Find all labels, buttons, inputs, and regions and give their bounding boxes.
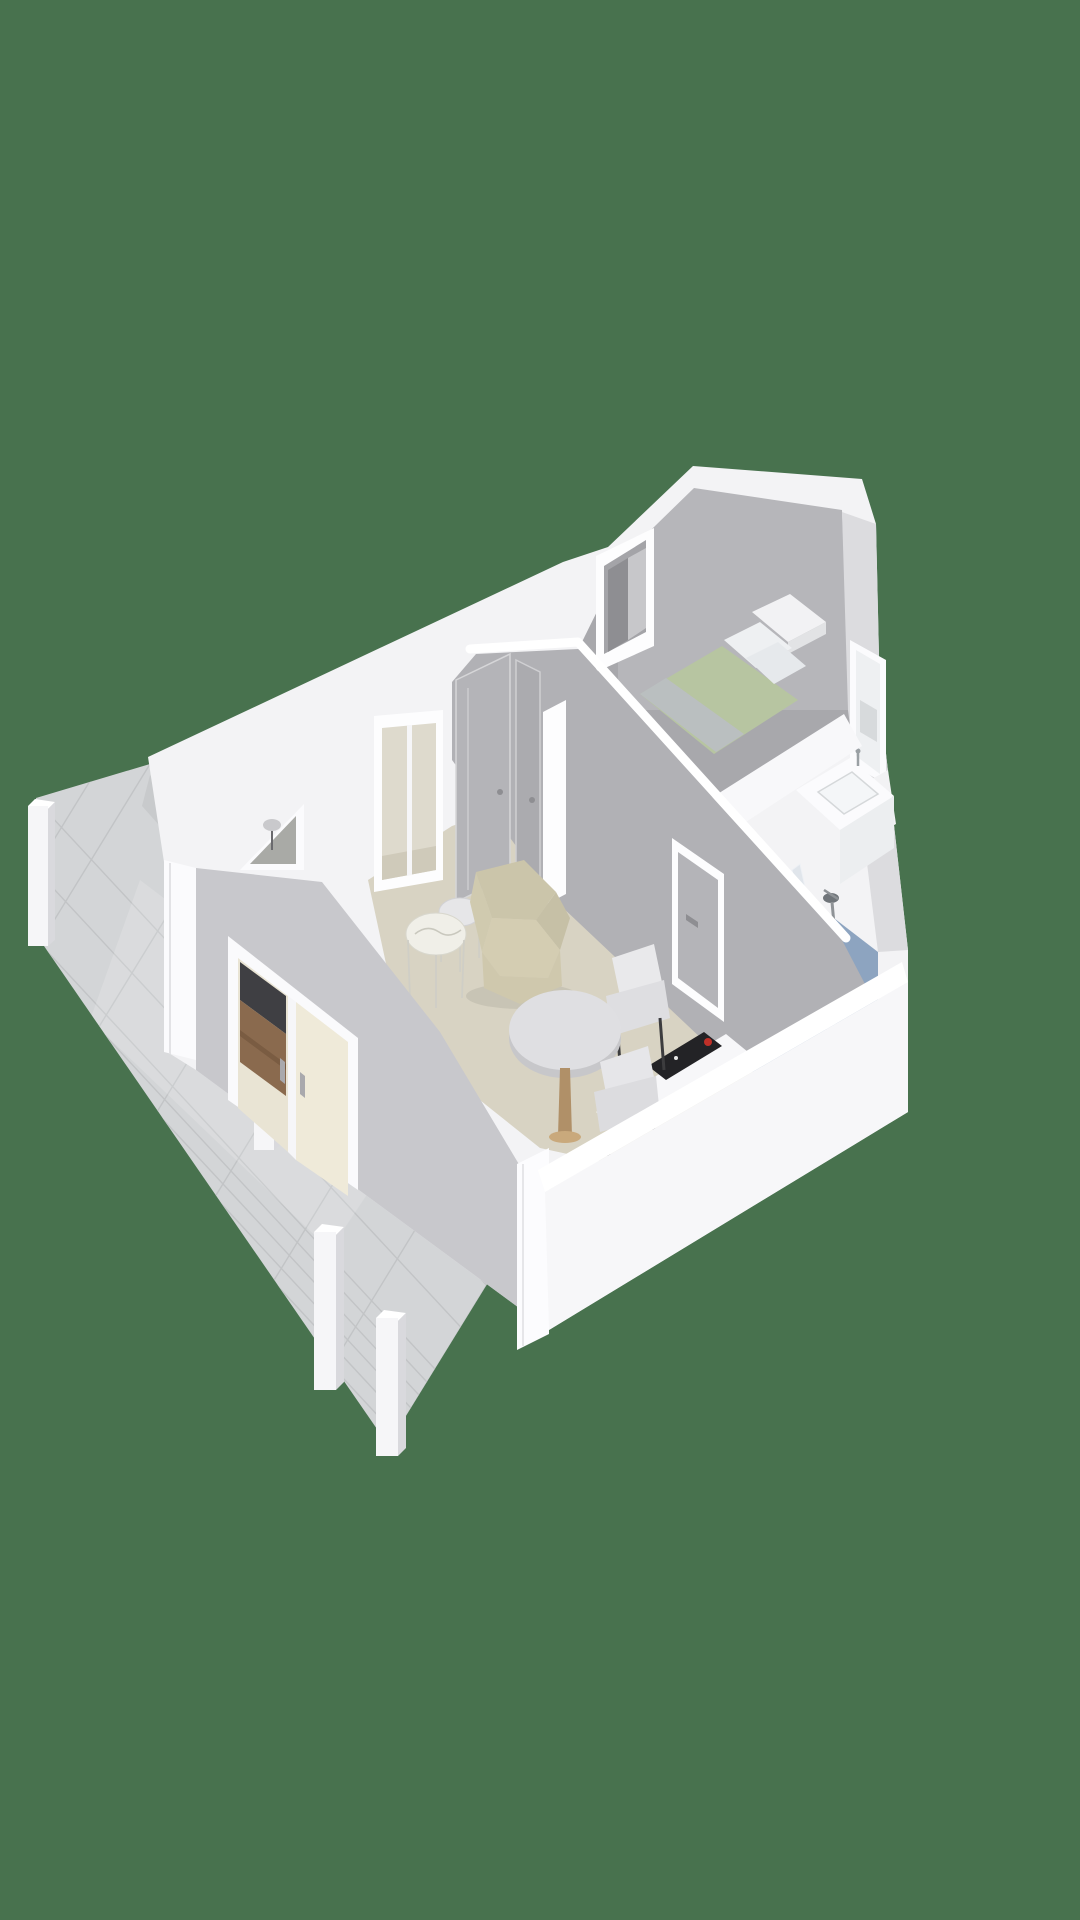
hallway-door-right [516,660,540,890]
floorplan-render [0,0,1080,1920]
hallway-door-left [456,654,510,902]
dining-table-leg [558,1068,572,1136]
hallway-door-left-handle [497,789,503,795]
floorplan-stage [0,0,1080,1920]
wardrobe-light-panel [628,548,646,640]
west-corner-pillar [164,860,196,1060]
post-side [336,1227,344,1390]
french-door-handle-right [300,1072,305,1098]
wardrobe-dark-panel [608,558,628,652]
terrace-post-3 [314,1224,344,1390]
west-pillar-face [164,860,196,1060]
post-side [398,1313,406,1456]
cooktop-dot [674,1056,678,1060]
french-door-handle-left [280,1058,285,1084]
cooktop-red-knob [704,1038,712,1046]
balcony-window [374,710,443,892]
dining-table-foot [549,1131,581,1143]
hallway-door-right-handle [529,797,535,803]
floor-lamp-shade [263,819,281,831]
post-side [48,802,55,946]
post-front [376,1318,398,1456]
terrace-post-4 [376,1310,406,1456]
hallway-door-jamb [543,700,566,906]
french-doors-mullion [288,996,296,1160]
post-front [28,806,48,946]
bathroom-window [850,640,886,784]
balcony-window-mullion [407,725,412,876]
dining-table-top [509,990,621,1070]
terrace-post-1 [28,799,55,946]
post-front [314,1232,336,1390]
